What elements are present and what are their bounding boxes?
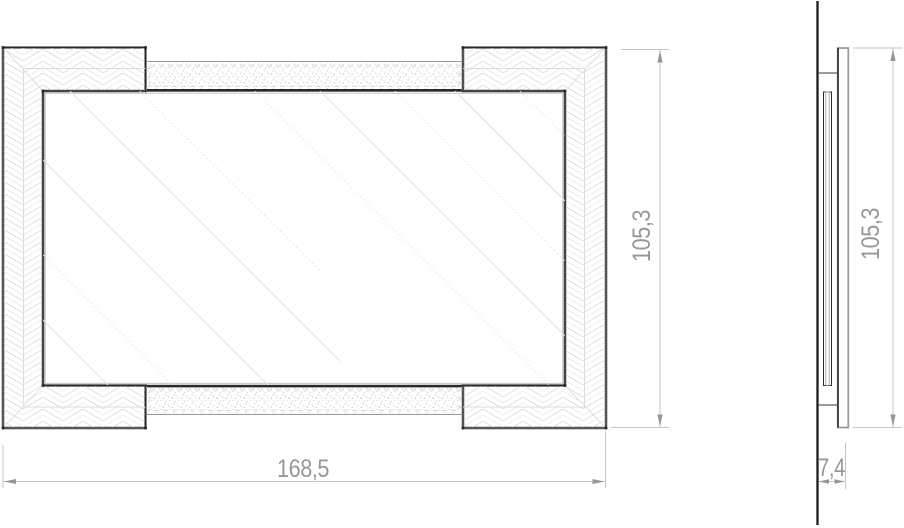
dimension-front-width: 168,5 bbox=[3, 431, 606, 488]
top-rail bbox=[147, 62, 463, 91]
glass-profile bbox=[824, 92, 832, 386]
dimension-front-height: 105,3 bbox=[611, 50, 669, 428]
bottom-rail bbox=[147, 386, 463, 415]
dimension-side-depth: 7,4 bbox=[818, 443, 846, 489]
drawing-canvas: 168,5 105,3 105,3 7,4 bbox=[0, 0, 904, 528]
corner-junction-markers bbox=[2, 46, 608, 429]
technical-drawing: 168,5 105,3 105,3 7,4 bbox=[0, 0, 904, 528]
reflection-lines bbox=[43, 91, 565, 385]
side-depth-dimension-label: 7,4 bbox=[818, 454, 845, 482]
dimension-side-height: 105,3 bbox=[853, 48, 902, 428]
front-width-dimension-label: 168,5 bbox=[277, 455, 329, 483]
frame-profile bbox=[838, 48, 849, 428]
frame-left-bracket bbox=[3, 48, 146, 429]
side-view bbox=[818, 1, 849, 525]
frame-right-bracket bbox=[463, 48, 606, 429]
front-height-dimension-label: 105,3 bbox=[628, 210, 656, 262]
side-height-dimension-label: 105,3 bbox=[857, 208, 885, 260]
mirror-glass bbox=[43, 91, 565, 386]
front-view bbox=[2, 46, 608, 429]
